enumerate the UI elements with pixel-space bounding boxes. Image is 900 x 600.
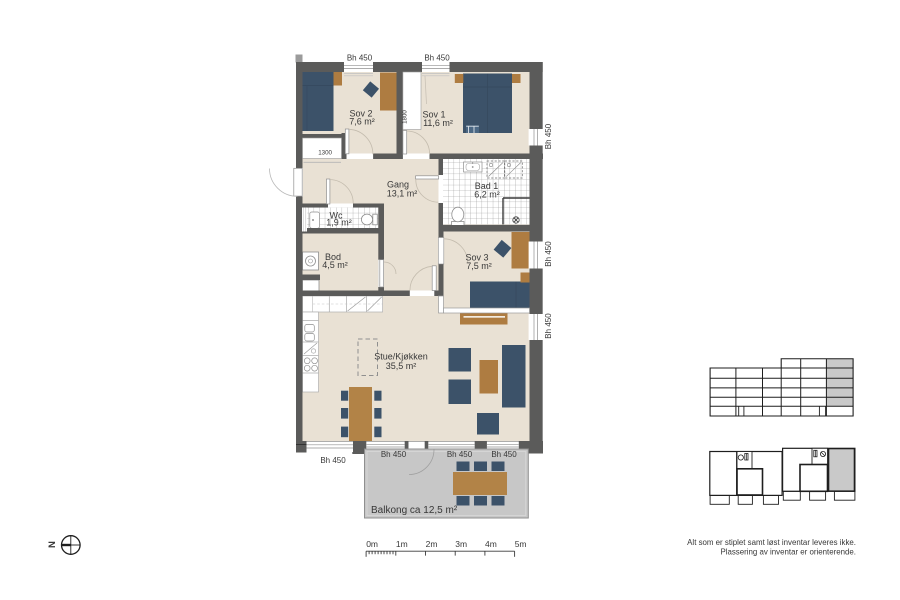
svg-text:1m: 1m — [396, 539, 408, 549]
svg-text:7,5 m²: 7,5 m² — [466, 261, 492, 271]
svg-text:Plassering av inventar er orie: Plassering av inventar er orienterende. — [720, 548, 856, 557]
svg-text:4m: 4m — [485, 539, 497, 549]
svg-text:1300: 1300 — [318, 150, 332, 157]
svg-text:6,2 m²: 6,2 m² — [474, 190, 500, 200]
svg-text:35,5 m²: 35,5 m² — [386, 361, 417, 371]
svg-text:11,6 m²: 11,6 m² — [423, 118, 453, 128]
svg-text:1800: 1800 — [402, 110, 409, 124]
svg-text:Alt som er stiplet samt løst i: Alt som er stiplet samt løst inventar le… — [687, 538, 856, 547]
svg-text:0m: 0m — [366, 539, 378, 549]
svg-text:3m: 3m — [455, 539, 467, 549]
svg-text:Bh 450: Bh 450 — [381, 450, 407, 459]
svg-text:4,5 m²: 4,5 m² — [322, 260, 348, 270]
svg-text:5m: 5m — [515, 539, 527, 549]
svg-text:Bh 450: Bh 450 — [491, 450, 517, 459]
svg-text:Bh 450: Bh 450 — [320, 456, 346, 465]
svg-text:Bh 450: Bh 450 — [347, 54, 373, 63]
svg-text:Balkong ca 12,5 m²: Balkong ca 12,5 m² — [371, 505, 458, 516]
svg-text:Bh 450: Bh 450 — [544, 123, 553, 149]
svg-text:7,6 m²: 7,6 m² — [349, 117, 375, 127]
svg-text:1,9 m²: 1,9 m² — [326, 218, 352, 228]
svg-text:13,1 m²: 13,1 m² — [387, 189, 418, 199]
svg-text:Bh 450: Bh 450 — [544, 313, 553, 339]
svg-text:Bh 450: Bh 450 — [424, 54, 450, 63]
svg-text:Bh 450: Bh 450 — [447, 450, 473, 459]
svg-text:2m: 2m — [426, 539, 438, 549]
svg-text:Stue/Kjøkken: Stue/Kjøkken — [374, 352, 428, 362]
svg-text:Bh 450: Bh 450 — [544, 241, 553, 267]
svg-text:N: N — [47, 541, 58, 548]
